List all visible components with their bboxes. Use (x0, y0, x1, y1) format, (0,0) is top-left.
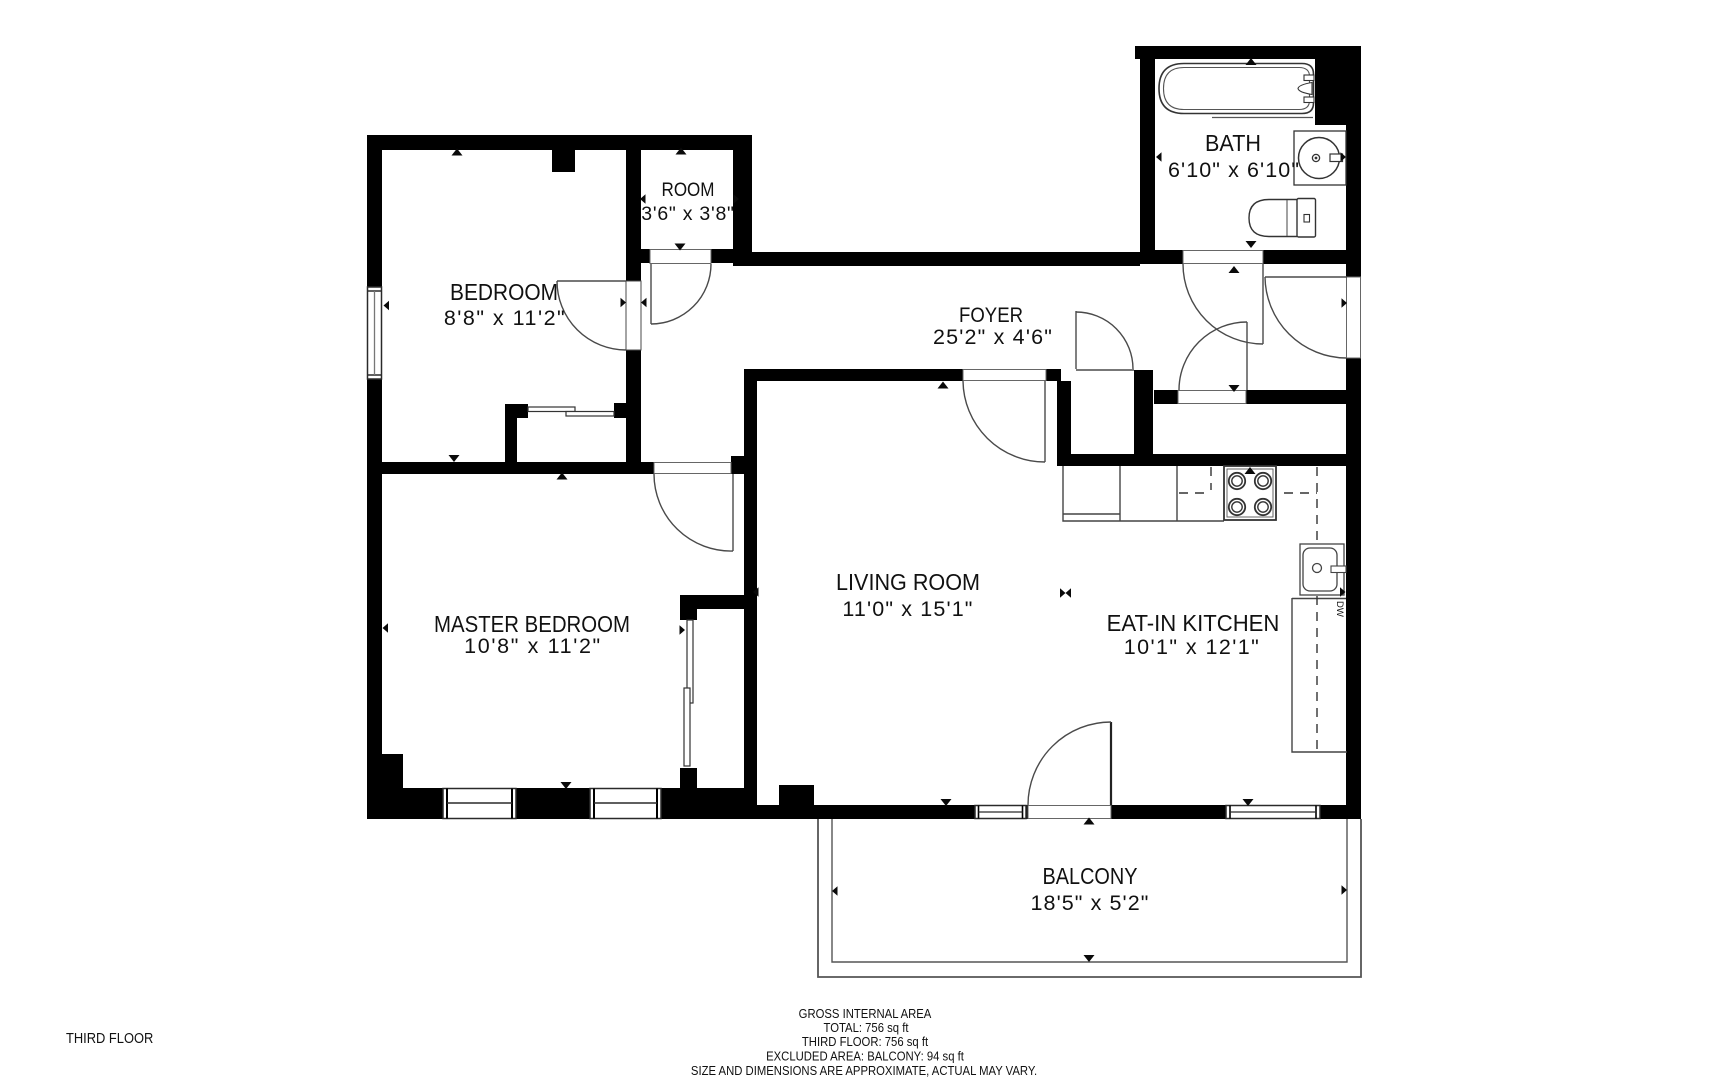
svg-text:6'10" x 6'10": 6'10" x 6'10" (1168, 158, 1300, 182)
svg-text:3'6" x 3'8": 3'6" x 3'8" (641, 203, 734, 225)
svg-text:10'8" x 11'2": 10'8" x 11'2" (464, 634, 602, 658)
svg-text:LIVING ROOM: LIVING ROOM (836, 569, 980, 595)
svg-text:25'2" x 4'6": 25'2" x 4'6" (933, 325, 1053, 349)
svg-text:ROOM: ROOM (662, 178, 715, 200)
svg-text:THIRD FLOOR: THIRD FLOOR (66, 1029, 153, 1046)
svg-text:BEDROOM: BEDROOM (450, 279, 558, 305)
svg-text:GROSS INTERNAL AREA: GROSS INTERNAL AREA (799, 1006, 933, 1021)
svg-text:11'0" x 15'1": 11'0" x 15'1" (842, 597, 973, 621)
svg-text:8'8" x 11'2": 8'8" x 11'2" (444, 306, 566, 330)
svg-text:TOTAL: 756 sq ft: TOTAL: 756 sq ft (824, 1020, 910, 1035)
svg-text:BALCONY: BALCONY (1043, 864, 1138, 890)
svg-text:EAT-IN KITCHEN: EAT-IN KITCHEN (1107, 611, 1280, 636)
svg-text:THIRD FLOOR: 756 sq ft: THIRD FLOOR: 756 sq ft (802, 1034, 929, 1049)
svg-text:DW: DW (1334, 601, 1345, 617)
svg-text:FOYER: FOYER (959, 304, 1023, 327)
svg-text:SIZE AND DIMENSIONS ARE APPROX: SIZE AND DIMENSIONS ARE APPROXIMATE, ACT… (691, 1063, 1037, 1078)
svg-text:BATH: BATH (1205, 130, 1261, 156)
svg-text:18'5" x 5'2": 18'5" x 5'2" (1030, 891, 1149, 915)
svg-text:10'1" x 12'1": 10'1" x 12'1" (1124, 635, 1261, 659)
svg-text:EXCLUDED AREA: BALCONY: 94 sq: EXCLUDED AREA: BALCONY: 94 sq ft (766, 1049, 964, 1064)
